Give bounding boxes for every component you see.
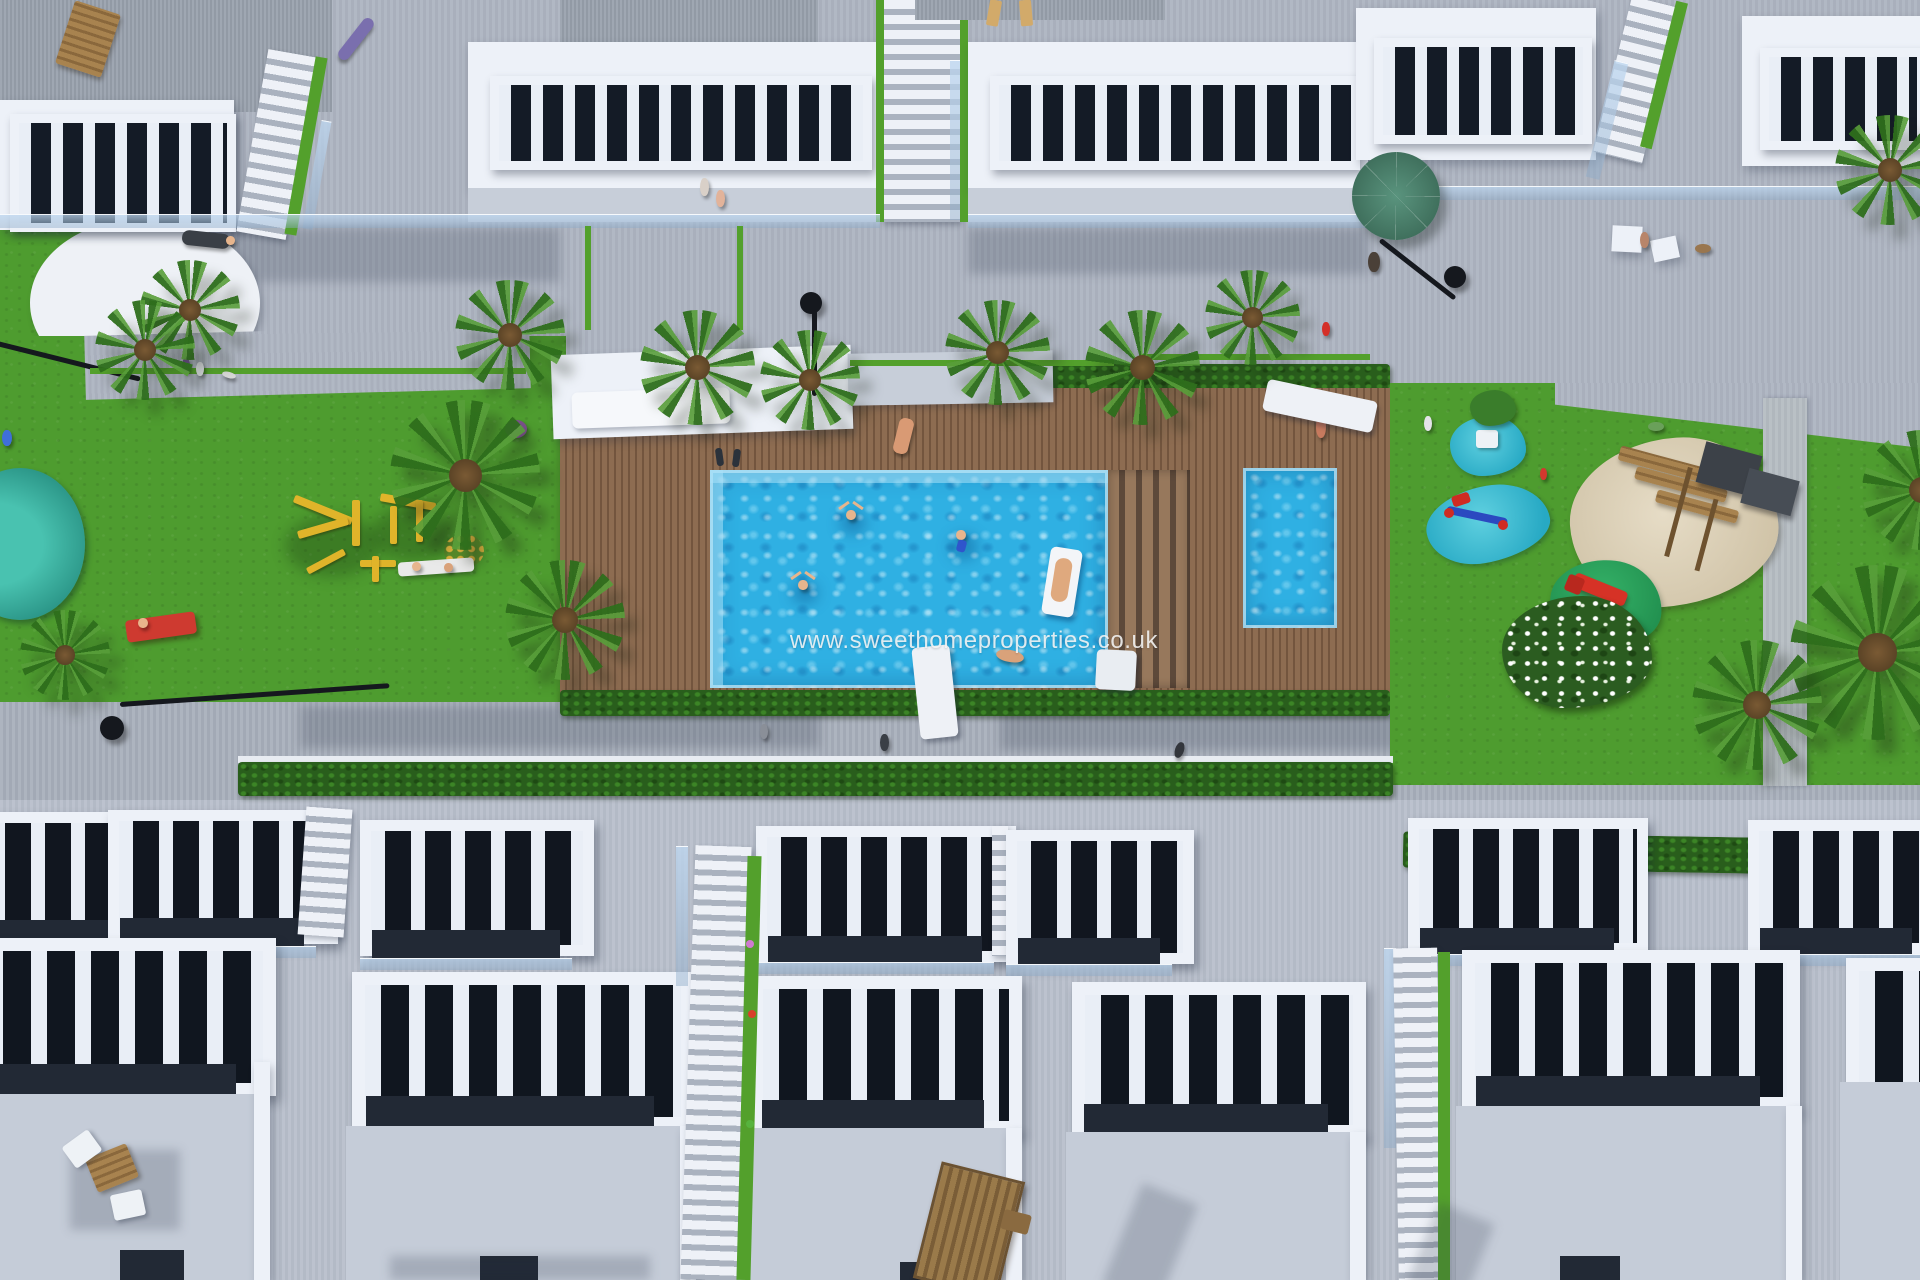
flower-bush (1502, 596, 1652, 708)
glass-balustrade (360, 958, 572, 970)
street-lamp-head (1444, 266, 1466, 288)
building-shadow (390, 1256, 650, 1280)
swimmer (798, 580, 808, 590)
terrace-opening (0, 1064, 236, 1094)
building-shadow (968, 228, 1368, 274)
green-inlay (737, 226, 743, 330)
playground-equipment (390, 506, 397, 544)
aerial-development-render: www.sweethomeproperties.co.uk (0, 0, 1920, 1280)
roof-terrace-railing (1374, 38, 1592, 144)
person (1368, 252, 1380, 272)
person-lying (1695, 244, 1711, 253)
person (1424, 416, 1432, 431)
kids-pool (1243, 468, 1337, 628)
terrace-opening (372, 930, 560, 958)
person (138, 618, 148, 628)
palm-tree (455, 280, 565, 390)
green-strip (960, 0, 968, 222)
palm-tree (1205, 270, 1300, 365)
terrace-opening (1084, 1104, 1328, 1132)
terrace-opening (762, 1100, 984, 1128)
swimmer (846, 510, 856, 520)
flower-dot (746, 940, 754, 948)
person-lying (1648, 422, 1664, 431)
person (760, 724, 768, 739)
seesaw-seat (1498, 520, 1508, 530)
terrace-opening (1018, 938, 1160, 964)
hedge-row (560, 690, 1390, 716)
glass-balustrade (0, 214, 880, 228)
road-shadow (1000, 712, 1400, 750)
palm-tree (760, 330, 860, 430)
outdoor-table (1611, 225, 1642, 253)
green-inlay (585, 226, 591, 330)
party-wall (1350, 1132, 1366, 1280)
doorway (1560, 1256, 1620, 1280)
palm-tree (640, 310, 755, 425)
glass-balustrade (1006, 964, 1172, 976)
person (1540, 468, 1547, 480)
terrace-opening (1476, 1076, 1760, 1106)
glass-balustrade (756, 962, 994, 974)
street-lamp-head (800, 292, 822, 314)
play-table (1476, 430, 1498, 448)
bush (1470, 390, 1516, 426)
building-roof (915, 0, 1165, 20)
watermark: www.sweethomeproperties.co.uk (790, 627, 1158, 655)
palm-tree (20, 610, 110, 700)
street-lamp-head (100, 716, 124, 740)
person (700, 178, 709, 196)
house-volume (1456, 1106, 1786, 1280)
person (196, 362, 204, 376)
swimmer (956, 530, 966, 540)
person (880, 734, 889, 751)
flower-dot (748, 1010, 756, 1018)
person-child (1322, 322, 1330, 336)
pool-shallow-shelf (710, 470, 723, 688)
roof-lounger (1019, 0, 1033, 26)
playground-equipment (372, 556, 379, 582)
playground-equipment (352, 500, 360, 546)
sun-lounger (1095, 649, 1137, 691)
person (716, 190, 725, 207)
staircase (298, 807, 353, 938)
party-wall (254, 1062, 270, 1280)
terrace-opening (768, 936, 982, 962)
party-wall (1786, 1106, 1802, 1280)
pool-shallow-shelf (710, 470, 1108, 483)
glass-balustrade (1356, 186, 1920, 200)
house-volume (1066, 1132, 1350, 1280)
person (1640, 232, 1649, 248)
palm-tree (95, 300, 195, 400)
palm-tree (1692, 640, 1822, 770)
glass-balustrade (676, 846, 688, 986)
person (2, 430, 12, 446)
central-staircase (882, 0, 960, 222)
house-volume (1840, 1082, 1920, 1280)
glass-balustrade (968, 214, 1368, 228)
palm-tree (945, 300, 1050, 405)
seesaw-seat (1444, 508, 1454, 518)
parasol (1352, 152, 1440, 240)
roof-terrace-railing (990, 76, 1360, 170)
person (412, 562, 421, 571)
terrace-opening (366, 1096, 654, 1126)
green-strip (876, 0, 884, 222)
person (444, 563, 453, 572)
palm-tree (505, 560, 625, 680)
palm-tree (390, 400, 540, 550)
person-head (226, 236, 235, 245)
glass-balustrade (950, 60, 960, 220)
doorway (120, 1250, 184, 1280)
building-roof (560, 0, 818, 44)
roadside-hedge (238, 762, 1393, 796)
flower-dot (746, 1120, 754, 1128)
palm-tree (1085, 310, 1200, 425)
roof-terrace-railing (490, 76, 872, 170)
